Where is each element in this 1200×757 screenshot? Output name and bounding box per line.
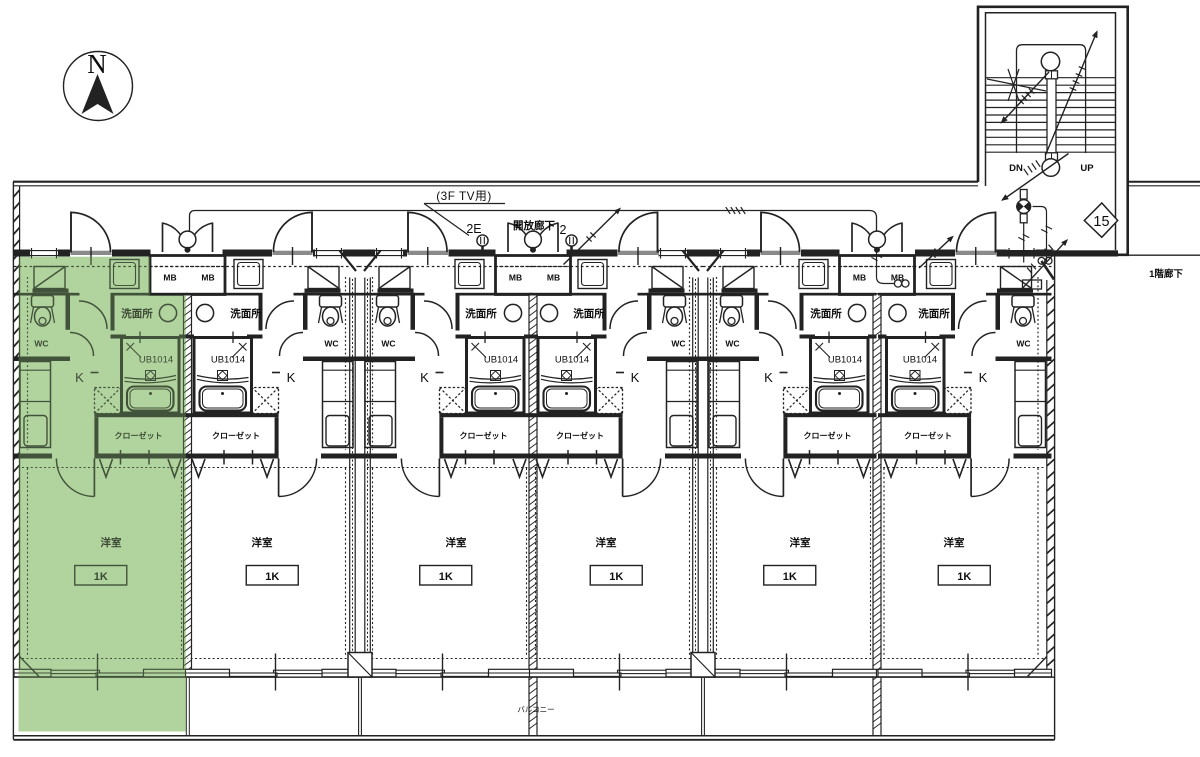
svg-text:WC: WC: [1016, 339, 1030, 349]
svg-text:WC: WC: [725, 339, 739, 349]
svg-text:K: K: [420, 370, 429, 385]
svg-text:クローゼット: クローゼット: [460, 431, 508, 441]
svg-text:洋室: 洋室: [944, 536, 965, 549]
svg-text:バルコニー: バルコニー: [517, 705, 554, 714]
svg-text:UB1014: UB1014: [211, 355, 245, 366]
svg-text:15: 15: [1093, 214, 1109, 230]
svg-text:洗面所: 洗面所: [918, 307, 950, 320]
svg-text:UB1014: UB1014: [484, 355, 518, 366]
svg-text:1K: 1K: [265, 571, 279, 583]
svg-text:MB: MB: [163, 273, 176, 283]
svg-text:1K: 1K: [783, 571, 797, 583]
svg-text:MB: MB: [547, 273, 560, 283]
svg-text:クローゼット: クローゼット: [212, 431, 260, 441]
svg-text:洗面所: 洗面所: [810, 307, 842, 320]
svg-text:2E: 2E: [466, 222, 481, 236]
svg-text:洗面所: 洗面所: [465, 307, 497, 320]
svg-text:クローゼット: クローゼット: [904, 431, 952, 441]
svg-text:MB: MB: [509, 273, 522, 283]
svg-text:MB: MB: [853, 273, 866, 283]
svg-text:1K: 1K: [957, 571, 971, 583]
svg-text:UB1014: UB1014: [828, 355, 862, 366]
svg-text:UP: UP: [1080, 163, 1094, 174]
svg-text:DN: DN: [1009, 163, 1023, 174]
svg-text:1K: 1K: [609, 571, 623, 583]
svg-text:UB1014: UB1014: [555, 355, 589, 366]
svg-text:洋室: 洋室: [446, 536, 467, 549]
svg-text:WC: WC: [381, 339, 395, 349]
svg-text:クローゼット: クローゼット: [804, 431, 852, 441]
svg-text:K: K: [979, 370, 988, 385]
svg-text:N: N: [87, 49, 107, 79]
svg-text:MB: MB: [201, 273, 214, 283]
svg-text:クローゼット: クローゼット: [556, 431, 604, 441]
svg-text:洗面所: 洗面所: [573, 307, 605, 320]
svg-text:UB1014: UB1014: [903, 355, 937, 366]
svg-text:K: K: [764, 370, 773, 385]
svg-text:洋室: 洋室: [252, 536, 273, 549]
svg-text:洋室: 洋室: [596, 536, 617, 549]
svg-text:開放廊下: 開放廊下: [513, 219, 555, 232]
svg-text:洋室: 洋室: [790, 536, 811, 549]
svg-text:1K: 1K: [439, 571, 453, 583]
svg-text:2: 2: [560, 223, 567, 237]
svg-text:WC: WC: [324, 339, 338, 349]
svg-text:(3F TV用): (3F TV用): [436, 189, 492, 203]
svg-text:1階廊下: 1階廊下: [1149, 268, 1183, 280]
svg-text:K: K: [631, 370, 640, 385]
svg-text:洗面所: 洗面所: [230, 307, 262, 320]
svg-text:K: K: [287, 370, 296, 385]
svg-text:WC: WC: [671, 339, 685, 349]
